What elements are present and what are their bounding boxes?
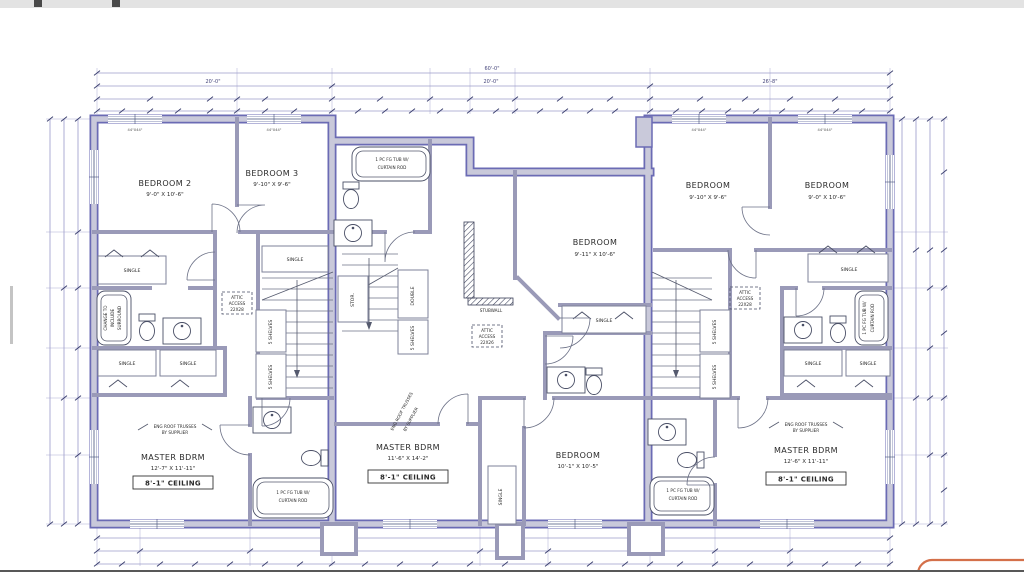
window-size-tag: 44"X44": [128, 128, 143, 132]
tub-note-center-1: 1 PC FG TUB W/: [375, 157, 409, 162]
room-label-right-bedroom-b: BEDROOM: [805, 181, 850, 190]
room-dims-master-left: 12'-7" X 11'-11": [151, 466, 196, 472]
shelves-label: 5 SHELVES: [410, 326, 416, 351]
attic-access-left-size: 22X28: [230, 307, 244, 312]
window: [108, 114, 162, 124]
sink: [253, 407, 291, 433]
room-dims-center-bedroom: 9'-11" X 10'-6": [575, 252, 616, 258]
tub-note-center-2: CURTAIN ROD: [378, 165, 407, 170]
closet-label-double: DOUBLE: [410, 286, 416, 305]
shelves-label: 5 SHELVES: [268, 365, 274, 390]
stair-bump-left: [322, 524, 356, 554]
tub-note-right-upper-1: 1 PC FG TUB W/: [862, 301, 867, 335]
closet-label-single: SINGLE: [596, 318, 613, 324]
closet-label-single: SINGLE: [287, 257, 304, 263]
attic-access-center-1: ATTIC: [481, 328, 493, 333]
attic-access-right-size: 22X28: [738, 302, 752, 307]
attic-access-left-2: ACCESS: [229, 301, 246, 306]
shelves-label: 5 SHELVES: [712, 365, 718, 390]
dim-left-unit: 20'-0": [205, 79, 220, 85]
room-dims-lower-bedroom: 10'-1" X 10'-5": [558, 464, 599, 470]
surround-note-1: CHANGE TO: [103, 305, 108, 331]
stair-arrow-center: [366, 322, 372, 330]
trusses-note-left-1: ENG ROOF TRUSSES: [154, 424, 197, 429]
attic-access-right-1: ATTIC: [739, 290, 751, 295]
closet-label-single: SINGLE: [180, 361, 197, 367]
room-label-center-bedroom: BEDROOM: [573, 238, 618, 247]
window-size-tag: 44"X44": [692, 128, 707, 132]
floor-plan-drawing: BEDROOM 2 9'-0" X 10'-6" BEDROOM 3 9'-10…: [0, 0, 1024, 572]
attic-access-center-2: ACCESS: [479, 334, 496, 339]
window: [672, 114, 726, 124]
room-dims-master-right: 12'-6" X 11'-11": [784, 459, 829, 465]
trusses-note-right-1: ENG ROOF TRUSSES: [785, 422, 828, 427]
room-dims-bedroom3: 9'-10" X 9'-6": [253, 182, 291, 188]
surround-note-2: INCLUDE: [110, 308, 115, 327]
tub-center-upper: [352, 147, 430, 181]
toilet: [139, 314, 155, 341]
tub-note-left-lower-2: CURTAIN ROD: [279, 498, 308, 503]
closet-label-stor: STOR.: [350, 293, 356, 307]
dim-right-unit: 26'-8": [762, 79, 777, 85]
window: [89, 430, 99, 484]
stubwall-hatch: [464, 222, 513, 305]
window: [130, 519, 184, 529]
stair-cut-right: [652, 272, 712, 300]
sink: [163, 318, 201, 344]
window: [383, 519, 437, 529]
dim-mid-unit: 20'-0": [483, 79, 498, 85]
toilet: [830, 316, 846, 343]
window: [89, 150, 99, 204]
closet-label-single: SINGLE: [841, 267, 858, 273]
closet-label-single: SINGLE: [860, 361, 877, 367]
window: [885, 155, 895, 209]
chase-box: [636, 117, 652, 147]
closet-rod-chevrons: [105, 246, 875, 387]
toilet: [678, 452, 705, 468]
toilet: [586, 368, 602, 395]
trusses-note-right-2: BY SUPPLIER: [793, 428, 820, 433]
tub-note-right-lower-1: 1 PC FG TUB W/: [666, 488, 700, 493]
stair-bump-right: [629, 524, 663, 554]
tub-note-left-lower-1: 1 PC FG TUB W/: [276, 490, 310, 495]
stubwall-label: STUBWALL: [480, 308, 503, 313]
stair-bump-center: [497, 524, 523, 558]
sink: [648, 419, 686, 445]
sink: [784, 317, 822, 343]
closet-label-single-vertical: SINGLE: [498, 489, 504, 506]
room-label-lower-bedroom: BEDROOM: [556, 451, 601, 460]
sink: [547, 367, 585, 393]
toilet: [343, 182, 359, 209]
room-label-right-bedroom-a: BEDROOM: [686, 181, 731, 190]
floor-plan-page: BEDROOM 2 9'-0" X 10'-6" BEDROOM 3 9'-10…: [0, 0, 1024, 572]
window-size-tag: 44"X44": [818, 128, 833, 132]
margin-note-smudge: [10, 286, 13, 344]
dim-overall-width: 60'-0": [484, 66, 499, 72]
closet-label-single: SINGLE: [124, 268, 141, 274]
window: [247, 114, 301, 124]
text-labels: BEDROOM 2 9'-0" X 10'-6" BEDROOM 3 9'-10…: [103, 66, 876, 505]
room-label-master-left: MASTER BDRM: [141, 453, 205, 462]
closet-label-single: SINGLE: [805, 361, 822, 367]
room-dims-right-bedroom-a: 9'-10" X 9'-6": [689, 195, 727, 201]
sink: [334, 220, 372, 246]
shelves-label: 5 SHELVES: [712, 320, 718, 345]
tub-note-right-upper-2: CURTAIN ROD: [870, 304, 875, 333]
tub-note-right-lower-2: CURTAIN ROD: [669, 496, 698, 501]
shelves-label: 5 SHELVES: [268, 320, 274, 345]
attic-access-left-1: ATTIC: [231, 295, 243, 300]
ceiling-label-center: 8'-1" CEILING: [380, 474, 436, 482]
room-dims-bedroom2: 9'-0" X 10'-6": [146, 192, 184, 198]
top-edge-mark: [112, 0, 120, 7]
window: [798, 114, 852, 124]
room-dims-right-bedroom-b: 9'-0" X 10'-6": [808, 195, 846, 201]
stair-cut-left: [262, 272, 333, 300]
window: [548, 519, 602, 529]
window-size-tag: 44"X44": [267, 128, 282, 132]
window: [760, 519, 814, 529]
top-edge-strip: [0, 0, 1024, 8]
ceiling-label-left: 8'-1" CEILING: [145, 480, 201, 488]
walls-interior: [94, 119, 890, 524]
toilet: [302, 450, 329, 466]
top-edge-mark: [34, 0, 42, 7]
room-label-bedroom3: BEDROOM 3: [246, 169, 299, 178]
surround-note-3: SURROUND: [117, 306, 122, 330]
window: [885, 430, 895, 484]
room-label-bedroom2: BEDROOM 2: [139, 179, 192, 188]
ceiling-label-right: 8'-1" CEILING: [778, 476, 834, 484]
room-label-master-right: MASTER BDRM: [774, 446, 838, 455]
room-label-master-center: MASTER BDRM: [376, 443, 440, 452]
room-dims-master-center: 11'-6" X 14'-2": [388, 456, 429, 462]
closet-label-single: SINGLE: [119, 361, 136, 367]
trusses-note-left-2: BY SUPPLIER: [162, 430, 189, 435]
attic-access-right-2: ACCESS: [737, 296, 754, 301]
attic-access-center-size: 22X26: [480, 340, 494, 345]
